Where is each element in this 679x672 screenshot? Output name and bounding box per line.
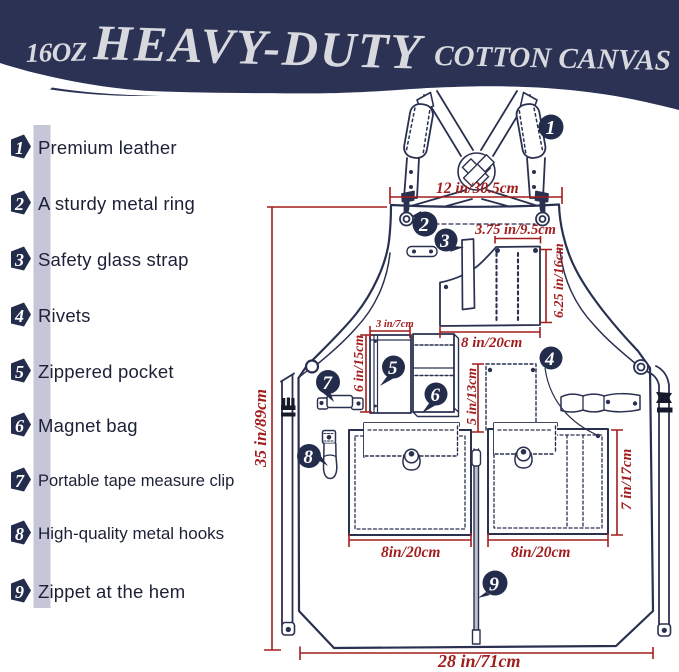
svg-text:8: 8 — [15, 524, 24, 544]
svg-text:8in/20cm: 8in/20cm — [511, 544, 570, 561]
svg-text:1: 1 — [15, 138, 24, 158]
svg-text:12 in/30.5cm: 12 in/30.5cm — [436, 180, 519, 197]
svg-text:7 in/17cm: 7 in/17cm — [619, 449, 635, 510]
svg-text:5: 5 — [15, 362, 24, 382]
svg-text:8in/20cm: 8in/20cm — [381, 544, 440, 561]
svg-text:Safety glass strap: Safety glass strap — [38, 249, 189, 270]
svg-text:7: 7 — [323, 373, 334, 394]
svg-text:HEAVY-DUTY: HEAVY-DUTY — [92, 14, 426, 80]
svg-text:2: 2 — [418, 214, 429, 236]
svg-text:High-quality metal hooks: High-quality metal hooks — [38, 524, 224, 543]
svg-text:6: 6 — [431, 385, 441, 406]
svg-text:6: 6 — [15, 416, 24, 436]
svg-text:Zippet at the hem: Zippet at the hem — [38, 581, 185, 602]
svg-text:9: 9 — [15, 582, 24, 602]
svg-text:6 in/15cm: 6 in/15cm — [352, 335, 367, 392]
svg-text:3: 3 — [439, 231, 450, 252]
svg-text:6.25 in/16cm: 6.25 in/16cm — [552, 243, 567, 318]
svg-text:Rivets: Rivets — [38, 305, 91, 326]
svg-text:Zippered pocket: Zippered pocket — [38, 361, 174, 382]
svg-text:3.75 in/9.5cm: 3.75 in/9.5cm — [474, 222, 556, 238]
svg-text:9: 9 — [489, 574, 499, 596]
svg-text:3: 3 — [14, 250, 24, 270]
svg-text:8: 8 — [304, 447, 314, 468]
svg-text:COTTON CANVAS: COTTON CANVAS — [434, 40, 671, 77]
svg-text:28 in/71cm: 28 in/71cm — [437, 651, 521, 671]
svg-text:4: 4 — [14, 306, 24, 326]
svg-text:3 in/7cm: 3 in/7cm — [375, 319, 414, 330]
svg-text:16OZ: 16OZ — [25, 36, 87, 68]
svg-text:1: 1 — [546, 117, 556, 139]
svg-text:8 in/20cm: 8 in/20cm — [461, 335, 522, 351]
svg-text:35 in/89cm: 35 in/89cm — [251, 389, 270, 468]
svg-text:A sturdy metal ring: A sturdy metal ring — [38, 193, 195, 214]
svg-text:2: 2 — [14, 194, 24, 214]
svg-text:4: 4 — [544, 349, 555, 370]
svg-text:Portable tape measure clip: Portable tape measure clip — [38, 472, 234, 490]
svg-text:5: 5 — [388, 358, 398, 379]
svg-text:5 in/13cm: 5 in/13cm — [465, 368, 480, 425]
svg-text:7: 7 — [15, 471, 25, 491]
svg-text:Magnet bag: Magnet bag — [38, 415, 138, 436]
svg-text:Premium leather: Premium leather — [38, 137, 177, 158]
